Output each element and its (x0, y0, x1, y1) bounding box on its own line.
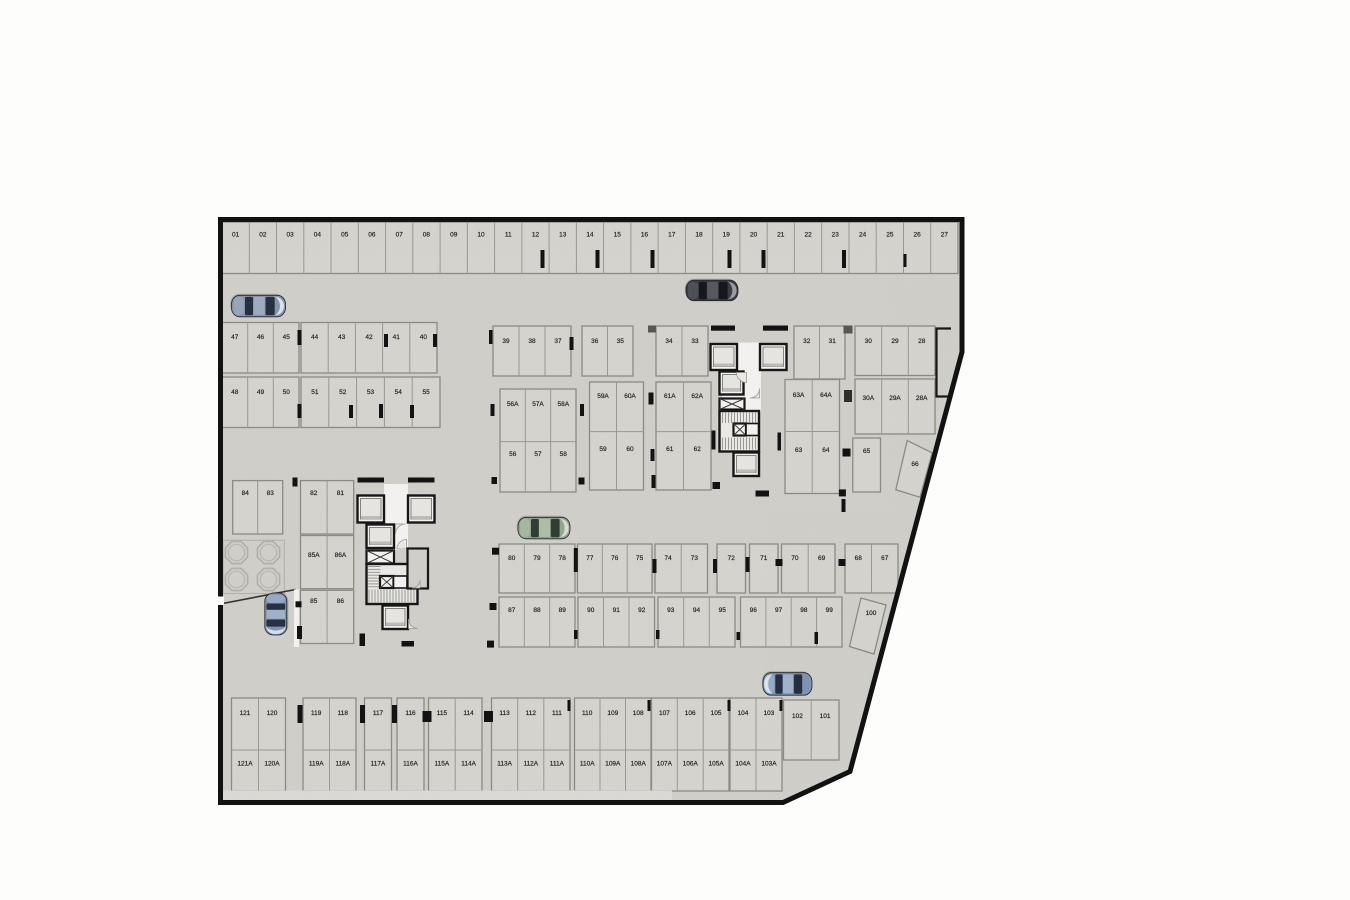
svg-text:86: 86 (337, 598, 345, 605)
svg-text:102: 102 (792, 713, 803, 720)
svg-text:68: 68 (855, 555, 863, 562)
svg-text:101: 101 (820, 713, 831, 720)
svg-text:58: 58 (560, 451, 568, 458)
svg-text:83: 83 (267, 490, 275, 497)
svg-text:116A: 116A (403, 761, 418, 768)
svg-text:85: 85 (310, 598, 318, 605)
svg-text:53: 53 (367, 389, 375, 396)
svg-text:119: 119 (311, 710, 322, 717)
svg-text:113: 113 (499, 710, 510, 717)
svg-text:117A: 117A (371, 761, 386, 768)
svg-text:43: 43 (338, 334, 346, 341)
svg-text:118A: 118A (335, 761, 350, 768)
svg-text:58A: 58A (558, 401, 570, 408)
svg-text:62: 62 (694, 446, 702, 453)
svg-text:117: 117 (373, 710, 384, 717)
svg-text:15: 15 (614, 232, 622, 239)
svg-text:109: 109 (607, 710, 618, 717)
svg-text:115: 115 (437, 710, 448, 717)
svg-text:46: 46 (257, 334, 265, 341)
svg-text:09: 09 (450, 232, 458, 239)
svg-text:107: 107 (659, 710, 670, 717)
svg-text:75: 75 (636, 555, 644, 562)
svg-text:32: 32 (803, 338, 811, 345)
svg-text:18: 18 (695, 232, 703, 239)
svg-text:90: 90 (587, 607, 595, 614)
svg-text:55: 55 (422, 389, 430, 396)
svg-text:60: 60 (626, 446, 634, 453)
svg-text:116: 116 (405, 710, 416, 717)
svg-text:81: 81 (337, 490, 345, 497)
svg-text:120: 120 (267, 710, 278, 717)
svg-text:34: 34 (665, 338, 673, 345)
svg-text:104A: 104A (735, 761, 751, 768)
svg-text:59: 59 (599, 446, 607, 453)
svg-text:60A: 60A (624, 393, 636, 400)
svg-text:111A: 111A (550, 761, 565, 768)
svg-text:38: 38 (528, 338, 536, 345)
svg-text:105: 105 (711, 710, 722, 717)
svg-text:22: 22 (804, 232, 812, 239)
svg-text:106: 106 (685, 710, 696, 717)
svg-text:31: 31 (829, 338, 837, 345)
svg-text:12: 12 (532, 232, 540, 239)
svg-text:118: 118 (338, 710, 349, 717)
svg-text:80: 80 (508, 555, 516, 562)
svg-text:64: 64 (822, 447, 830, 454)
svg-text:19: 19 (723, 232, 731, 239)
svg-text:62A: 62A (691, 393, 703, 400)
svg-text:17: 17 (668, 232, 676, 239)
svg-text:89: 89 (559, 607, 567, 614)
svg-text:110: 110 (582, 710, 593, 717)
svg-text:120A: 120A (264, 761, 280, 768)
svg-text:29: 29 (891, 338, 899, 345)
svg-text:121: 121 (240, 710, 251, 717)
svg-text:71: 71 (760, 555, 768, 562)
svg-text:84: 84 (242, 490, 250, 497)
svg-text:57: 57 (534, 451, 542, 458)
svg-text:48: 48 (231, 389, 239, 396)
svg-text:29A: 29A (889, 395, 901, 402)
svg-text:113A: 113A (497, 761, 512, 768)
svg-text:50: 50 (283, 389, 291, 396)
svg-text:114A: 114A (461, 761, 476, 768)
svg-text:67: 67 (881, 555, 889, 562)
svg-text:64A: 64A (820, 392, 832, 399)
svg-text:91: 91 (613, 607, 621, 614)
svg-text:44: 44 (311, 334, 319, 341)
svg-text:30A: 30A (863, 395, 875, 402)
svg-text:115A: 115A (435, 761, 450, 768)
svg-text:73: 73 (691, 555, 699, 562)
svg-text:42: 42 (365, 334, 373, 341)
svg-text:28A: 28A (916, 395, 928, 402)
svg-text:108A: 108A (631, 761, 647, 768)
svg-text:40: 40 (420, 334, 428, 341)
svg-text:04: 04 (314, 232, 322, 239)
svg-text:26: 26 (913, 232, 921, 239)
svg-text:03: 03 (286, 232, 294, 239)
svg-text:104: 104 (738, 710, 749, 717)
svg-text:88: 88 (533, 607, 541, 614)
svg-text:103: 103 (764, 710, 775, 717)
svg-text:27: 27 (941, 232, 949, 239)
svg-text:05: 05 (341, 232, 349, 239)
svg-text:79: 79 (533, 555, 541, 562)
svg-text:37: 37 (554, 338, 562, 345)
svg-text:86A: 86A (335, 552, 347, 559)
svg-text:49: 49 (257, 389, 265, 396)
svg-text:110A: 110A (580, 761, 595, 768)
svg-text:56: 56 (509, 451, 517, 458)
svg-text:103A: 103A (761, 761, 777, 768)
svg-text:51: 51 (311, 389, 319, 396)
svg-text:77: 77 (586, 555, 594, 562)
svg-text:35: 35 (617, 338, 625, 345)
svg-text:57A: 57A (532, 401, 544, 408)
svg-text:24: 24 (859, 232, 867, 239)
svg-text:07: 07 (396, 232, 404, 239)
svg-text:36: 36 (591, 338, 599, 345)
svg-text:23: 23 (832, 232, 840, 239)
svg-text:105A: 105A (709, 761, 725, 768)
svg-text:111: 111 (552, 710, 562, 717)
svg-text:02: 02 (259, 232, 267, 239)
svg-text:96: 96 (750, 607, 758, 614)
svg-text:11: 11 (505, 232, 512, 239)
svg-text:93: 93 (667, 607, 675, 614)
svg-text:56A: 56A (507, 401, 519, 408)
svg-text:20: 20 (750, 232, 758, 239)
svg-text:16: 16 (641, 232, 649, 239)
svg-text:92: 92 (638, 607, 646, 614)
svg-text:69: 69 (818, 555, 826, 562)
svg-text:108: 108 (633, 710, 644, 717)
svg-text:70: 70 (791, 555, 799, 562)
svg-text:63: 63 (795, 447, 803, 454)
svg-text:74: 74 (664, 555, 672, 562)
svg-text:76: 76 (611, 555, 619, 562)
svg-text:63A: 63A (793, 392, 805, 399)
svg-text:28: 28 (918, 338, 926, 345)
svg-text:52: 52 (339, 389, 347, 396)
svg-text:61: 61 (666, 446, 674, 453)
svg-text:100: 100 (866, 610, 877, 617)
svg-text:85A: 85A (308, 552, 320, 559)
svg-text:66: 66 (911, 461, 919, 468)
svg-text:106A: 106A (683, 761, 699, 768)
svg-text:30: 30 (865, 338, 873, 345)
svg-text:08: 08 (423, 232, 431, 239)
svg-text:87: 87 (508, 607, 516, 614)
svg-text:112A: 112A (523, 761, 538, 768)
svg-text:21: 21 (777, 232, 785, 239)
svg-text:54: 54 (395, 389, 403, 396)
svg-text:94: 94 (693, 607, 701, 614)
svg-text:95: 95 (719, 607, 727, 614)
svg-text:45: 45 (283, 334, 291, 341)
svg-text:06: 06 (368, 232, 376, 239)
svg-text:25: 25 (886, 232, 894, 239)
svg-text:14: 14 (586, 232, 594, 239)
svg-text:121A: 121A (237, 761, 253, 768)
svg-text:112: 112 (526, 710, 537, 717)
svg-text:33: 33 (691, 338, 699, 345)
svg-text:99: 99 (826, 607, 834, 614)
svg-text:119A: 119A (309, 761, 324, 768)
svg-text:114: 114 (463, 710, 474, 717)
svg-text:61A: 61A (664, 393, 676, 400)
svg-text:98: 98 (800, 607, 808, 614)
svg-text:13: 13 (559, 232, 567, 239)
svg-text:39: 39 (502, 338, 510, 345)
svg-text:72: 72 (728, 555, 736, 562)
svg-text:109A: 109A (605, 761, 621, 768)
svg-text:41: 41 (393, 334, 401, 341)
svg-text:82: 82 (310, 490, 318, 497)
svg-text:10: 10 (477, 232, 485, 239)
svg-text:107A: 107A (657, 761, 673, 768)
svg-text:59A: 59A (597, 393, 609, 400)
svg-text:47: 47 (231, 334, 239, 341)
svg-text:01: 01 (232, 232, 240, 239)
svg-text:78: 78 (559, 555, 567, 562)
svg-text:97: 97 (775, 607, 783, 614)
svg-text:65: 65 (863, 448, 871, 455)
